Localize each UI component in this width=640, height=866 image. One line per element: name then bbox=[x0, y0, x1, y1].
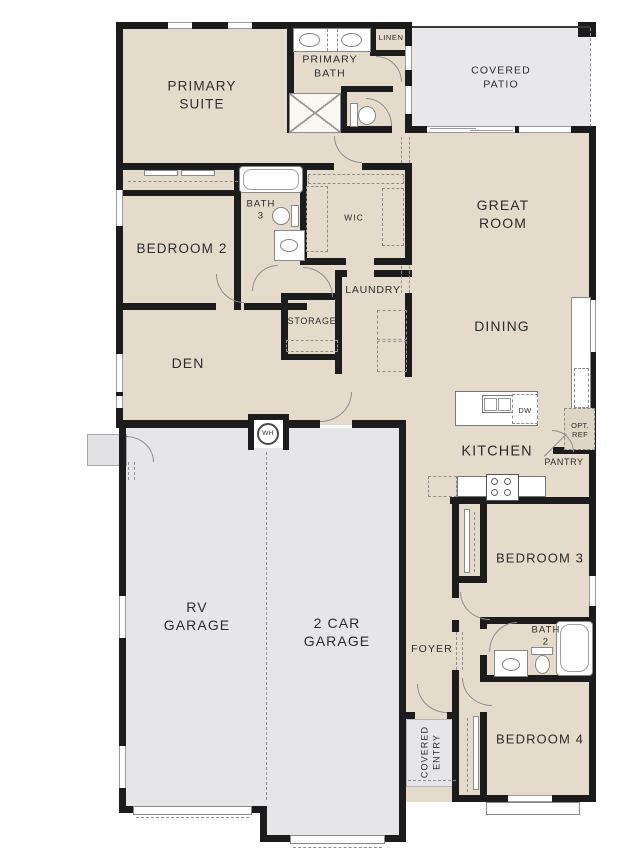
wall bbox=[450, 497, 596, 504]
room-label-pantry: PANTRY bbox=[544, 457, 583, 469]
wall bbox=[119, 190, 240, 196]
sink-basin bbox=[484, 398, 497, 411]
cased-opening bbox=[456, 632, 457, 670]
wall bbox=[405, 163, 412, 263]
window bbox=[116, 396, 123, 408]
closet-door-slab bbox=[473, 716, 479, 790]
wall bbox=[452, 620, 459, 632]
counter-dash bbox=[428, 476, 457, 497]
patio-roof-edge bbox=[412, 26, 590, 28]
closet-door-slab bbox=[181, 170, 215, 176]
room-label-den: DEN bbox=[172, 354, 205, 372]
room-label-dining: DINING bbox=[474, 317, 530, 335]
wall bbox=[374, 270, 412, 277]
wall bbox=[480, 712, 487, 802]
window bbox=[119, 596, 126, 638]
shower-icon bbox=[289, 93, 341, 133]
closet-door-slab bbox=[144, 170, 178, 176]
wall bbox=[300, 258, 346, 265]
room-label-bedroom-3: BEDROOM 3 bbox=[496, 551, 584, 568]
dryer-icon bbox=[377, 341, 407, 372]
optional-refrigerator-label: OPT. REF bbox=[571, 421, 589, 439]
garage-door-dash bbox=[136, 817, 249, 818]
vanity-divider bbox=[337, 29, 338, 51]
window bbox=[589, 576, 596, 606]
wic-shelf bbox=[308, 174, 404, 184]
sink-icon bbox=[502, 658, 520, 671]
window bbox=[116, 190, 123, 226]
side-door-dash bbox=[134, 462, 135, 480]
wall bbox=[116, 22, 294, 29]
window bbox=[116, 354, 123, 392]
sink-icon bbox=[341, 33, 362, 47]
side-door-dash bbox=[128, 462, 129, 480]
closet-rod-dash bbox=[128, 181, 238, 182]
wic-shelf bbox=[306, 186, 328, 252]
window bbox=[519, 126, 571, 133]
wall bbox=[341, 86, 347, 133]
wall bbox=[352, 420, 406, 428]
wall bbox=[405, 22, 412, 133]
range-icon bbox=[486, 474, 519, 501]
burner-icon bbox=[491, 478, 498, 485]
garage-door-dash bbox=[293, 847, 382, 848]
room-label-great-room: GREAT ROOM bbox=[477, 196, 530, 232]
window bbox=[119, 746, 126, 788]
storage-shelf bbox=[286, 340, 338, 352]
washer-icon bbox=[377, 310, 407, 340]
burner-icon bbox=[491, 489, 498, 496]
dishwasher-label: DW bbox=[518, 406, 531, 416]
counter-dash bbox=[574, 368, 589, 408]
bay-window-sill bbox=[486, 802, 580, 815]
vanity-divider bbox=[327, 29, 328, 51]
window bbox=[405, 86, 412, 114]
room-label-wic: WIC bbox=[344, 212, 364, 223]
burner-icon bbox=[504, 489, 511, 496]
room-label-linen: LINEN bbox=[378, 33, 403, 43]
wall bbox=[283, 414, 289, 450]
wall bbox=[452, 576, 487, 583]
window bbox=[228, 22, 252, 29]
two-car-garage-door bbox=[290, 835, 385, 844]
toilet-icon bbox=[535, 655, 550, 674]
room-label-foyer: FOYER bbox=[411, 643, 453, 657]
toilet-tank-icon bbox=[291, 205, 299, 227]
closet-rod-dash bbox=[474, 512, 475, 572]
cased-opening bbox=[401, 266, 402, 293]
patio-post bbox=[578, 22, 596, 37]
room-label-primary-suite: PRIMARY SUITE bbox=[168, 77, 237, 112]
wic-shelf bbox=[382, 188, 404, 246]
room-label-laundry: LAUNDRY bbox=[345, 284, 401, 298]
sink-icon bbox=[299, 33, 320, 47]
sliding-door-panel bbox=[470, 130, 513, 131]
room-label-covered-entry: COVERED ENTRY bbox=[419, 707, 442, 797]
wall bbox=[452, 504, 459, 580]
rv-garage-door bbox=[133, 806, 252, 815]
wall bbox=[480, 504, 487, 580]
cased-opening bbox=[409, 137, 410, 163]
burner-icon bbox=[504, 478, 511, 485]
wall bbox=[452, 670, 459, 712]
room-label-kitchen: KITCHEN bbox=[461, 443, 532, 462]
water-heater-label: WH bbox=[262, 430, 273, 438]
wall bbox=[285, 420, 320, 428]
toilet-tank-icon bbox=[350, 103, 358, 127]
bathtub-inner bbox=[243, 169, 299, 190]
wall bbox=[399, 712, 415, 719]
wall bbox=[119, 420, 250, 428]
wall bbox=[452, 712, 459, 802]
wall bbox=[452, 583, 459, 598]
wall bbox=[589, 126, 596, 802]
garage-bay-divider bbox=[266, 452, 267, 800]
wall bbox=[116, 303, 216, 310]
wall bbox=[341, 86, 393, 92]
room-label-bath-2: BATH 2 bbox=[531, 625, 560, 650]
sink-icon bbox=[280, 239, 298, 252]
room-label-primary-bath: PRIMARY BATH bbox=[302, 53, 357, 80]
window bbox=[508, 795, 552, 802]
wall bbox=[399, 425, 406, 842]
room-label-storage: STORAGE bbox=[288, 316, 337, 328]
room-label-2-car-garage: 2 CAR GARAGE bbox=[304, 614, 371, 650]
cased-opening bbox=[409, 266, 410, 293]
closet-door-slab bbox=[464, 509, 470, 573]
wall bbox=[335, 270, 347, 277]
sink-basin bbox=[498, 398, 511, 411]
window bbox=[405, 46, 412, 70]
window bbox=[168, 22, 192, 29]
floor-plan: PRIMARY SUITE PRIMARY BATH LINEN COVERED… bbox=[0, 0, 640, 866]
room-label-bedroom-4: BEDROOM 4 bbox=[496, 732, 584, 749]
bathtub-inner bbox=[560, 624, 589, 672]
cased-opening bbox=[401, 137, 402, 163]
wall bbox=[281, 354, 341, 360]
wall bbox=[244, 303, 307, 310]
cased-opening bbox=[462, 632, 463, 670]
room-label-bedroom-2: BEDROOM 2 bbox=[137, 240, 228, 258]
room-label-rv-garage: RV GARAGE bbox=[164, 598, 231, 634]
room-label-covered-patio: COVERED PATIO bbox=[471, 64, 531, 91]
sliding-door-panel bbox=[430, 128, 476, 129]
closet-rod-dash bbox=[467, 718, 468, 792]
patio-dashed-edge bbox=[590, 28, 591, 127]
room-label-bath-3: BATH 3 bbox=[246, 199, 275, 224]
